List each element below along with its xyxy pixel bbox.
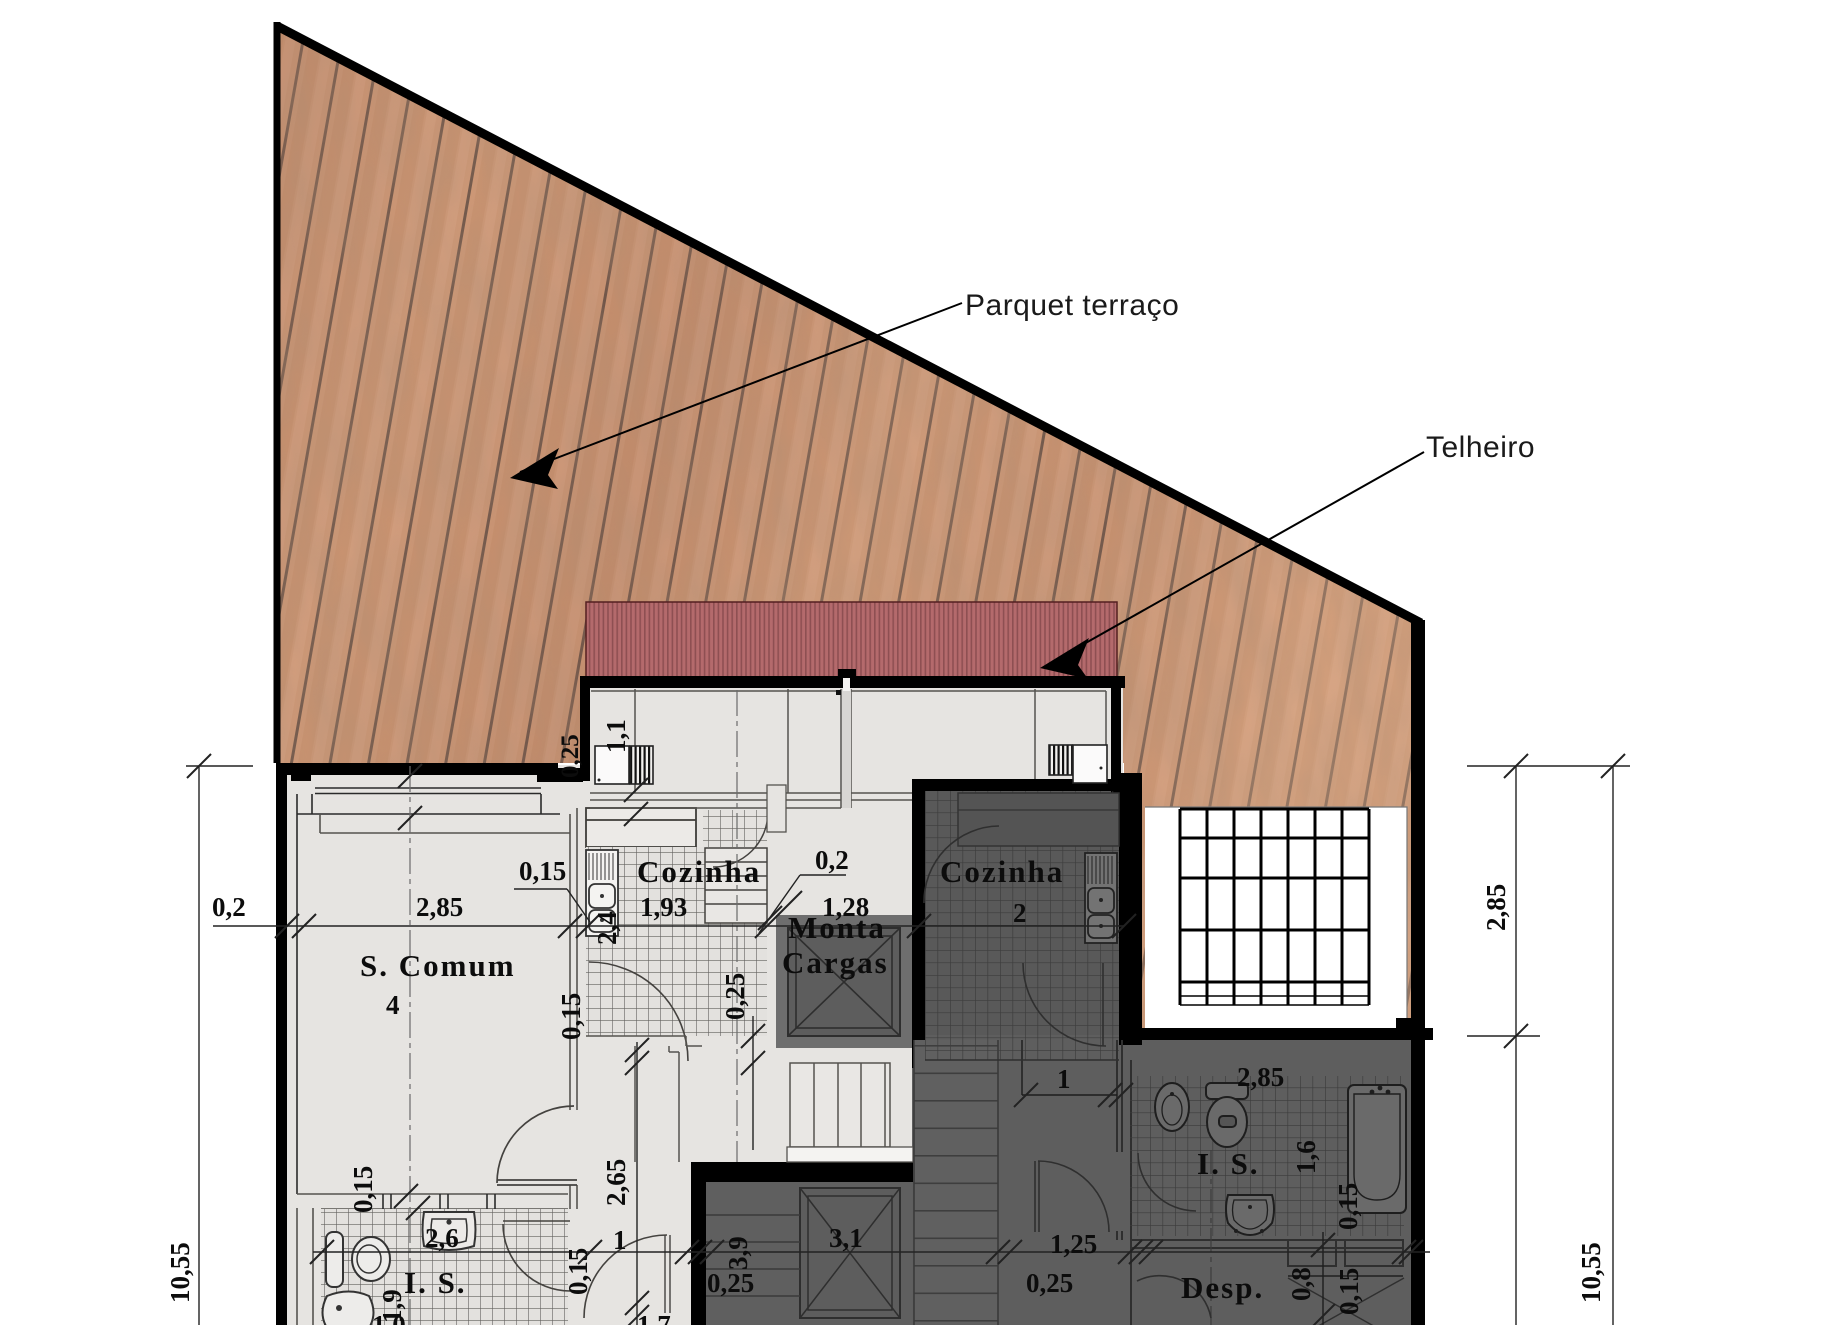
- svg-text:0,25: 0,25: [720, 973, 750, 1020]
- svg-text:0,15: 0,15: [1333, 1183, 1363, 1230]
- svg-text:0,2: 0,2: [815, 845, 849, 875]
- svg-text:0,25: 0,25: [1026, 1268, 1073, 1298]
- svg-text:0,25: 0,25: [557, 734, 584, 778]
- svg-text:0,15: 0,15: [1334, 1268, 1364, 1315]
- svg-text:0,8: 0,8: [1286, 1267, 1316, 1301]
- svg-text:Cozinha: Cozinha: [940, 854, 1064, 889]
- svg-text:4: 4: [386, 990, 400, 1020]
- svg-text:Cargas: Cargas: [782, 945, 889, 980]
- svg-text:0,15: 0,15: [563, 1248, 593, 1295]
- svg-text:2,85: 2,85: [416, 892, 463, 922]
- svg-text:S. Comum: S. Comum: [360, 948, 516, 983]
- svg-text:2,85: 2,85: [1237, 1062, 1284, 1092]
- svg-text:Cozinha: Cozinha: [637, 854, 761, 889]
- svg-text:I. S.: I. S.: [404, 1265, 467, 1300]
- svg-text:Telheiro: Telheiro: [1426, 431, 1535, 464]
- svg-text:I. S.: I. S.: [1197, 1146, 1260, 1181]
- svg-text:2,85: 2,85: [1481, 884, 1511, 931]
- svg-text:3,9: 3,9: [723, 1236, 753, 1270]
- svg-text:Desp.: Desp.: [1181, 1270, 1264, 1305]
- svg-text:1,93: 1,93: [640, 892, 687, 922]
- svg-text:0,25: 0,25: [707, 1268, 754, 1298]
- svg-text:1,6: 1,6: [1291, 1140, 1321, 1174]
- svg-text:1: 1: [1057, 1064, 1071, 1094]
- svg-text:0,15: 0,15: [348, 1166, 378, 1213]
- svg-text:0,15: 0,15: [556, 993, 586, 1040]
- svg-text:1: 1: [613, 1225, 627, 1255]
- svg-text:2,6: 2,6: [425, 1223, 459, 1253]
- svg-text:Parquet terraço: Parquet terraço: [965, 289, 1179, 322]
- svg-text:2: 2: [1013, 898, 1027, 928]
- svg-text:0,2: 0,2: [212, 892, 246, 922]
- svg-text:0,15: 0,15: [519, 856, 566, 886]
- svg-text:2,65: 2,65: [601, 1159, 631, 1206]
- svg-text:1,0: 1,0: [372, 1310, 406, 1325]
- svg-text:1,25: 1,25: [1050, 1229, 1097, 1259]
- svg-text:Monta: Monta: [788, 910, 886, 945]
- svg-text:10,55: 10,55: [165, 1242, 195, 1303]
- svg-text:3,1: 3,1: [829, 1223, 863, 1253]
- svg-text:10,55: 10,55: [1576, 1242, 1606, 1303]
- svg-text:2,4: 2,4: [592, 911, 622, 945]
- svg-text:1,1: 1,1: [601, 719, 631, 753]
- svg-text:1,7: 1,7: [637, 1310, 671, 1325]
